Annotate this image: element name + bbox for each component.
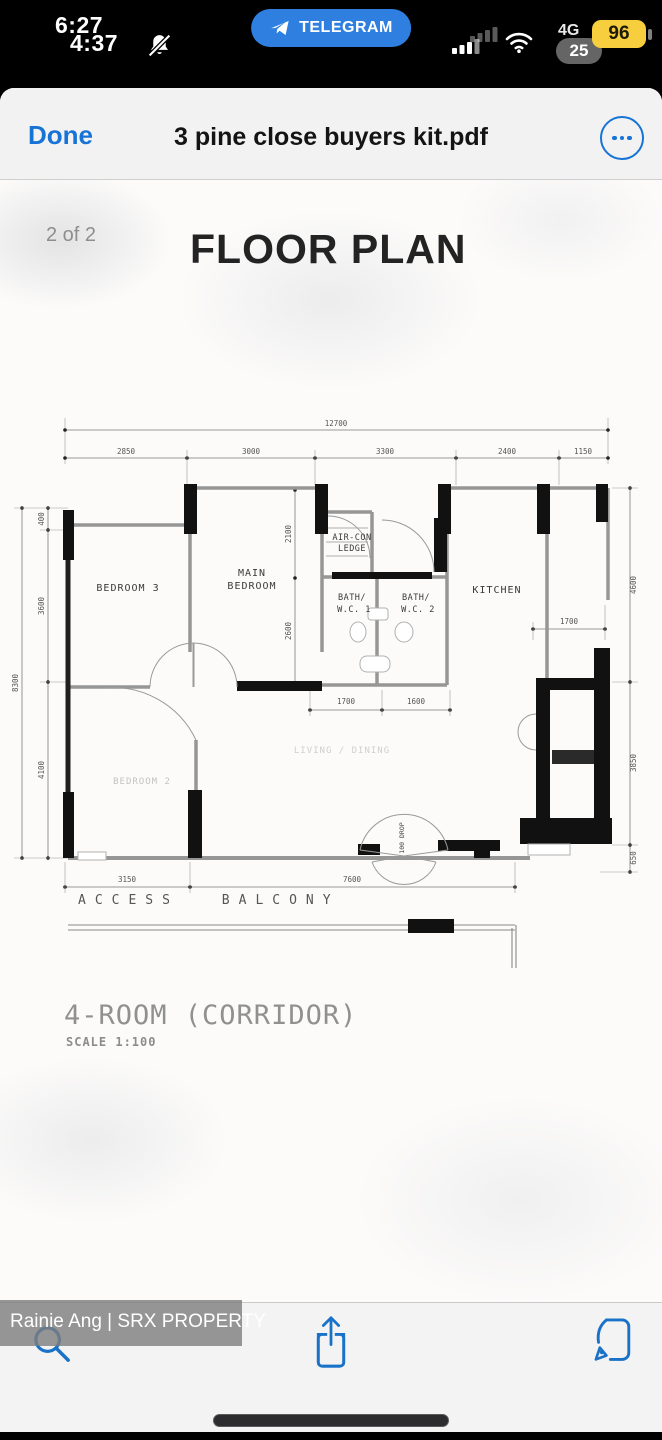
dim-bottom-1: 3150 xyxy=(118,875,137,884)
notification-bell-muted-icon xyxy=(146,32,173,59)
status-bar: 6:27 4:37 TELEGRAM xyxy=(0,0,662,88)
room-label-main-bedroom-1: MAIN xyxy=(238,568,266,579)
share-icon xyxy=(318,1318,343,1366)
share-button[interactable] xyxy=(308,1314,354,1370)
watermark-text: Rainie Ang | SRX PROPERTY xyxy=(10,1311,266,1332)
time-secondary: 4:37 xyxy=(70,30,118,57)
page-indicator: 2 of 2 xyxy=(46,224,96,247)
document-title: 3 pine close buyers kit.pdf xyxy=(174,123,488,152)
telegram-banner[interactable]: TELEGRAM xyxy=(251,9,411,47)
room-label-aircon-1: AIR-CON xyxy=(332,533,371,543)
dim-main-bedroom-2: 2600 xyxy=(284,621,293,640)
markup-icon xyxy=(596,1320,629,1359)
telegram-label: TELEGRAM xyxy=(299,19,393,37)
floor-plan-title: FLOOR PLAN xyxy=(190,226,466,273)
ellipsis-icon xyxy=(612,136,617,141)
screen: 6:27 4:37 TELEGRAM xyxy=(0,0,662,1440)
dim-bath-2: 1600 xyxy=(407,697,426,706)
home-indicator[interactable] xyxy=(213,1414,449,1427)
markup-button[interactable] xyxy=(590,1316,636,1366)
dim-left-1: 400 xyxy=(37,512,46,526)
room-label-main-bedroom-2: BEDROOM xyxy=(227,581,276,592)
dim-left-2: 3600 xyxy=(37,596,46,615)
dim-right-1: 4600 xyxy=(629,575,638,594)
more-options-button[interactable] xyxy=(600,116,644,160)
dim-left-3: 4100 xyxy=(37,760,46,779)
dim-top-1: 2850 xyxy=(117,447,136,456)
dim-total-width: 12700 xyxy=(325,419,348,428)
dim-bath-1: 1700 xyxy=(337,697,356,706)
dim-right-3: 650 xyxy=(629,851,638,865)
dim-top-5: 1150 xyxy=(574,447,593,456)
room-label-bath2-2: W.C. 2 xyxy=(401,605,435,615)
room-label-bath1-2: W.C. 1 xyxy=(337,605,371,615)
room-label-aircon-2: LEDGE xyxy=(338,544,366,554)
plan-scale: SCALE 1:100 xyxy=(66,1035,156,1049)
wifi-icon xyxy=(505,32,533,54)
dim-top-3: 3300 xyxy=(376,447,395,456)
battery-cap xyxy=(648,29,652,40)
dim-right-2: 3850 xyxy=(629,753,638,772)
entrance-drop-note: 100 DROP xyxy=(398,822,406,853)
watermark-banner: Rainie Ang | SRX PROPERTY xyxy=(0,1300,242,1346)
dim-kitchen: 1700 xyxy=(560,617,579,626)
done-button[interactable]: Done xyxy=(28,120,93,151)
telegram-icon xyxy=(269,17,291,39)
bottom-black-strip xyxy=(0,1432,662,1440)
room-label-bedroom2: BEDROOM 2 xyxy=(113,777,171,787)
floor-plan-drawing: 12700 2850 3000 3300 2400 1150 8300 400 … xyxy=(0,400,662,1040)
plan-name: 4-ROOM (CORRIDOR) xyxy=(64,1000,357,1031)
room-label-bath1-1: BATH/ xyxy=(338,593,366,603)
signal-strength-ghost-icon xyxy=(470,26,500,43)
dim-top-4: 2400 xyxy=(498,447,517,456)
access-balcony-label: ACCESS BALCONY xyxy=(78,893,340,908)
dim-main-bedroom-1: 2100 xyxy=(284,524,293,543)
dim-top-2: 3000 xyxy=(242,447,261,456)
dim-bottom-2: 7600 xyxy=(343,875,362,884)
room-label-living-dining: LIVING / DINING xyxy=(294,746,390,756)
room-label-bath2-1: BATH/ xyxy=(402,593,430,603)
room-label-bedroom3: BEDROOM 3 xyxy=(96,583,159,594)
battery-badge: 96 xyxy=(592,20,646,48)
dim-left-total: 8300 xyxy=(11,673,20,692)
room-label-kitchen: KITCHEN xyxy=(472,585,521,596)
